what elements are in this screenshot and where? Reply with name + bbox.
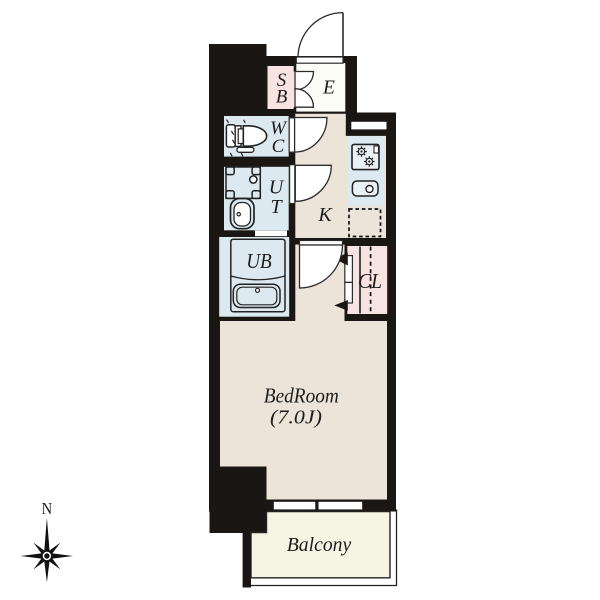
svg-text:CL: CL bbox=[358, 269, 382, 293]
svg-text:BedRoom: BedRoom bbox=[264, 383, 339, 407]
svg-text:UB: UB bbox=[246, 249, 272, 273]
svg-text:N: N bbox=[42, 499, 53, 518]
svg-text:T: T bbox=[270, 196, 283, 218]
svg-text:K: K bbox=[317, 204, 333, 226]
svg-text:(7.0J): (7.0J) bbox=[270, 407, 322, 429]
svg-text:B: B bbox=[276, 87, 288, 108]
svg-text:Balcony: Balcony bbox=[287, 534, 352, 556]
svg-text:E: E bbox=[322, 78, 335, 99]
svg-text:C: C bbox=[272, 136, 285, 157]
